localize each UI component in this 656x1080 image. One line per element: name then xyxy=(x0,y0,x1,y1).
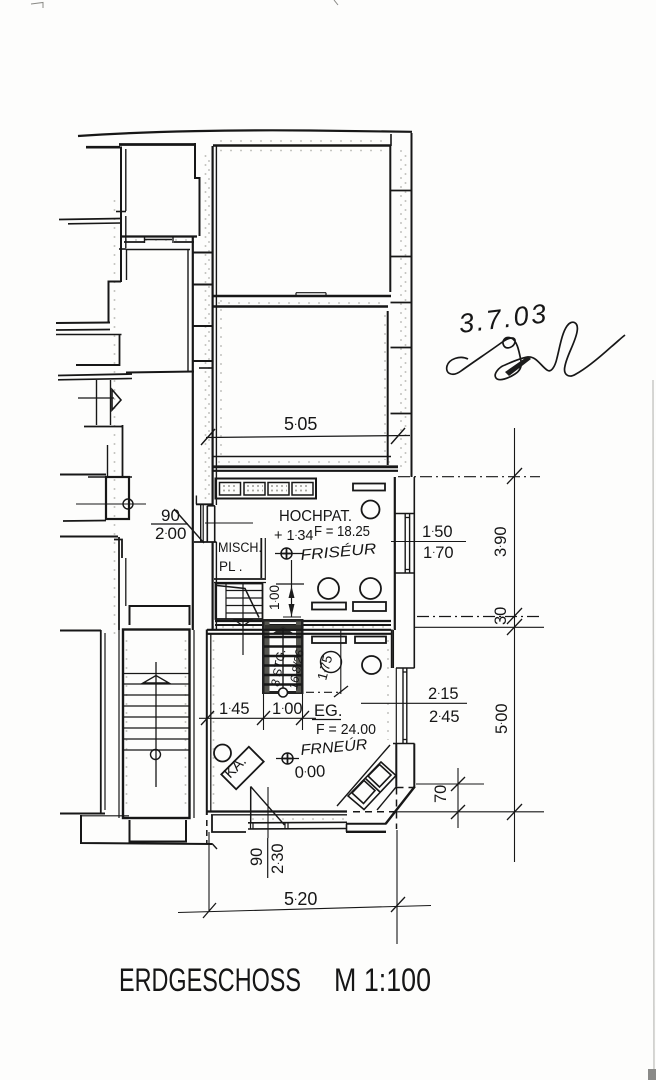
svg-text:5.05: 5.05 xyxy=(284,414,317,434)
svg-text:5.00: 5.00 xyxy=(493,703,511,734)
svg-text:2.00: 2.00 xyxy=(155,524,186,543)
svg-text:3.90: 3.90 xyxy=(492,526,510,557)
svg-text:EG.: EG. xyxy=(314,702,342,720)
svg-text:1.00: 1.00 xyxy=(272,700,303,718)
svg-text:1.45: 1.45 xyxy=(219,700,250,718)
svg-text:F = 24.00: F = 24.00 xyxy=(316,721,376,738)
svg-text:1.00: 1.00 xyxy=(267,585,282,610)
svg-text:M 1:100: M 1:100 xyxy=(334,962,431,998)
svg-text:2.15: 2.15 xyxy=(428,685,459,703)
svg-text:70: 70 xyxy=(432,785,450,803)
svg-text:90: 90 xyxy=(161,506,180,525)
svg-text:PL .: PL . xyxy=(219,559,243,574)
svg-text:F = 18.25: F = 18.25 xyxy=(314,524,370,540)
svg-text:0.00: 0.00 xyxy=(294,762,326,782)
svg-text:5.20: 5.20 xyxy=(284,889,317,909)
svg-text:1.50: 1.50 xyxy=(422,523,453,541)
svg-text:1.70: 1.70 xyxy=(423,544,454,562)
svg-text:ERDGESCHOSS: ERDGESCHOSS xyxy=(119,962,301,998)
svg-text:2.45: 2.45 xyxy=(429,708,460,726)
svg-text:MISCH.: MISCH. xyxy=(218,540,262,555)
svg-text:2.30: 2.30 xyxy=(269,843,287,874)
svg-text:HOCHPAT.: HOCHPAT. xyxy=(279,508,352,525)
svg-text:30: 30 xyxy=(492,607,510,625)
svg-text:+ 1.34: + 1.34 xyxy=(274,528,313,544)
svg-text:90: 90 xyxy=(248,848,266,866)
